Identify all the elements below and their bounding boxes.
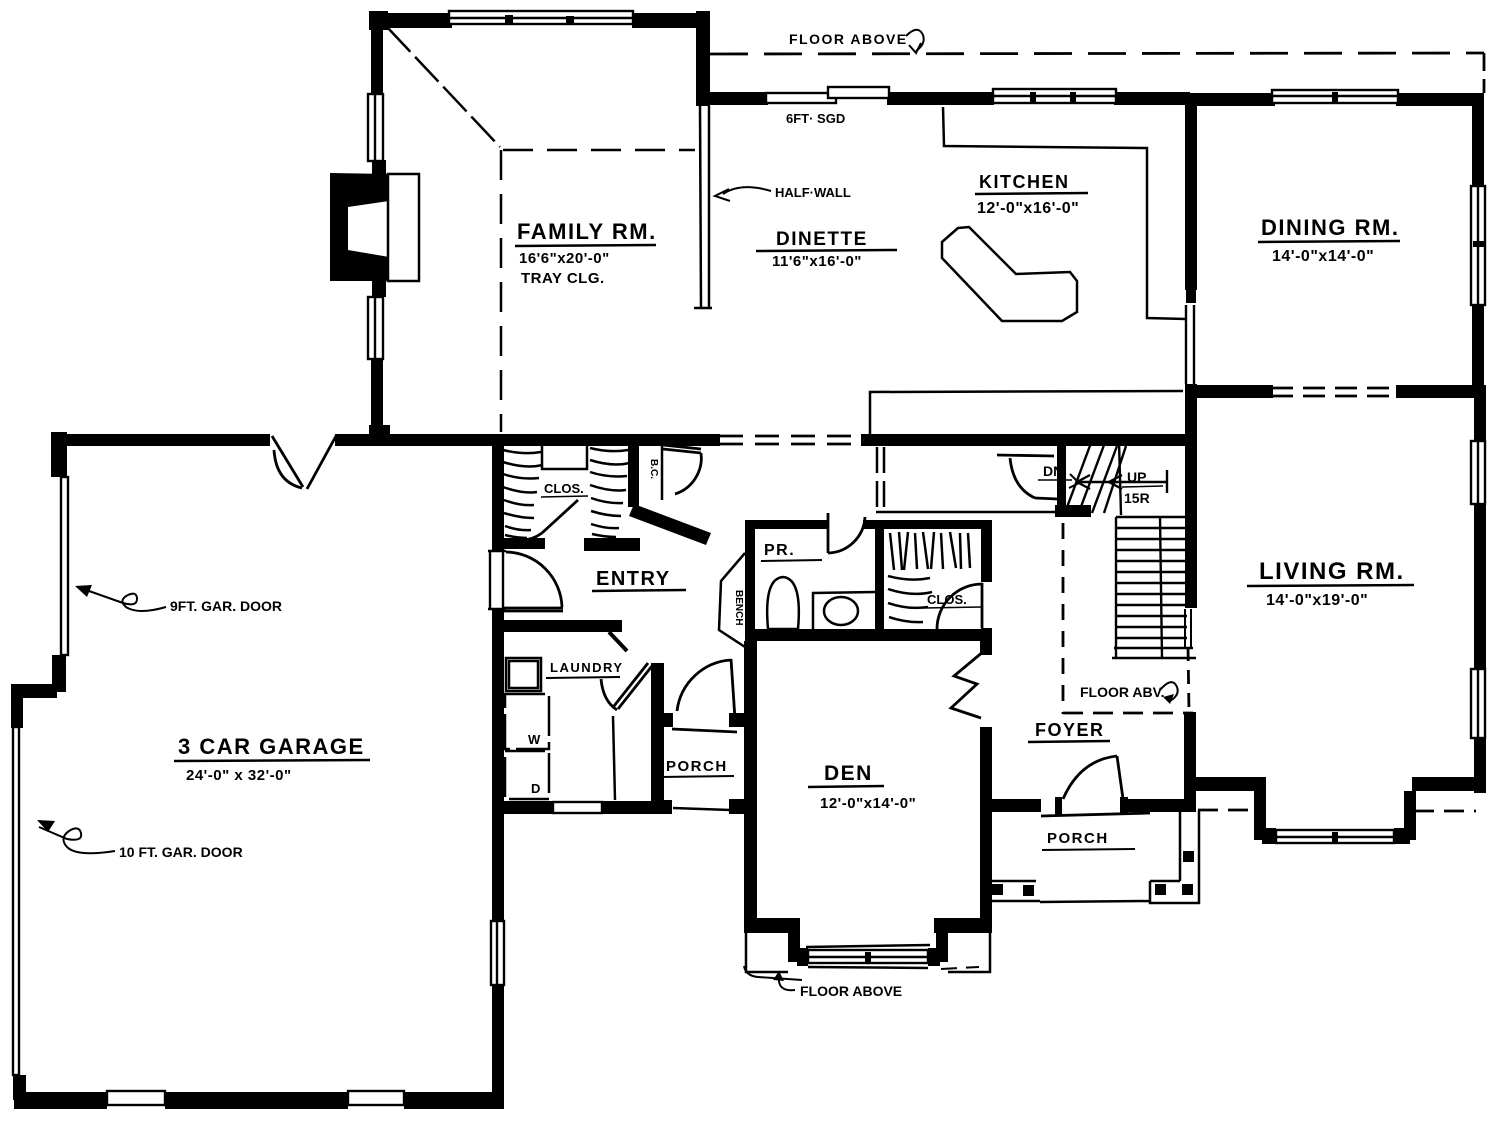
svg-text:12'-0"x14'-0": 12'-0"x14'-0": [820, 795, 916, 812]
svg-text:LAUNDRY: LAUNDRY: [550, 660, 624, 675]
svg-text:FAMILY RM.: FAMILY RM.: [517, 219, 657, 244]
svg-text:PORCH: PORCH: [1047, 830, 1109, 847]
svg-text:BENCH: BENCH: [733, 590, 744, 626]
svg-text:FLOOR ABOVE: FLOOR ABOVE: [789, 31, 908, 47]
svg-text:9FT. GAR. DOOR: 9FT. GAR. DOOR: [170, 598, 282, 614]
svg-text:KITCHEN: KITCHEN: [979, 172, 1070, 192]
svg-text:3 CAR GARAGE: 3 CAR GARAGE: [178, 734, 365, 759]
svg-text:HALF·WALL: HALF·WALL: [775, 185, 851, 200]
svg-text:CLOS.: CLOS.: [927, 592, 967, 607]
svg-text:12'-0"x16'-0": 12'-0"x16'-0": [977, 200, 1079, 217]
svg-text:PORCH: PORCH: [666, 758, 728, 775]
svg-text:ENTRY: ENTRY: [596, 568, 671, 590]
svg-text:11'6"x16'-0": 11'6"x16'-0": [772, 253, 862, 270]
svg-text:FLOOR ABV.: FLOOR ABV.: [1080, 684, 1165, 700]
svg-text:W: W: [528, 732, 541, 747]
svg-text:FLOOR ABOVE: FLOOR ABOVE: [800, 983, 902, 999]
svg-text:LIVING RM.: LIVING RM.: [1259, 558, 1405, 585]
svg-text:14'-0"x14'-0": 14'-0"x14'-0": [1272, 248, 1374, 265]
svg-text:D: D: [531, 781, 540, 796]
svg-text:14'-0"x19'-0": 14'-0"x19'-0": [1266, 592, 1368, 609]
svg-text:FOYER: FOYER: [1035, 720, 1105, 740]
svg-text:DINING RM.: DINING RM.: [1261, 215, 1399, 240]
svg-text:6FT· SGD: 6FT· SGD: [786, 111, 845, 126]
svg-text:DINETTE: DINETTE: [776, 229, 868, 250]
svg-text:TRAY CLG.: TRAY CLG.: [521, 270, 605, 287]
svg-text:DN: DN: [1043, 463, 1063, 479]
svg-text:24'-0" x 32'-0": 24'-0" x 32'-0": [186, 767, 292, 784]
svg-text:UP: UP: [1127, 469, 1146, 485]
svg-text:10 FT. GAR. DOOR: 10 FT. GAR. DOOR: [119, 844, 243, 860]
svg-text:PR.: PR.: [764, 542, 795, 559]
svg-text:16'6"x20'-0": 16'6"x20'-0": [519, 250, 610, 267]
svg-text:15R: 15R: [1124, 490, 1150, 506]
svg-text:CLOS.: CLOS.: [544, 481, 584, 496]
svg-text:B.C.: B.C.: [648, 459, 659, 479]
svg-text:DEN: DEN: [824, 762, 873, 785]
